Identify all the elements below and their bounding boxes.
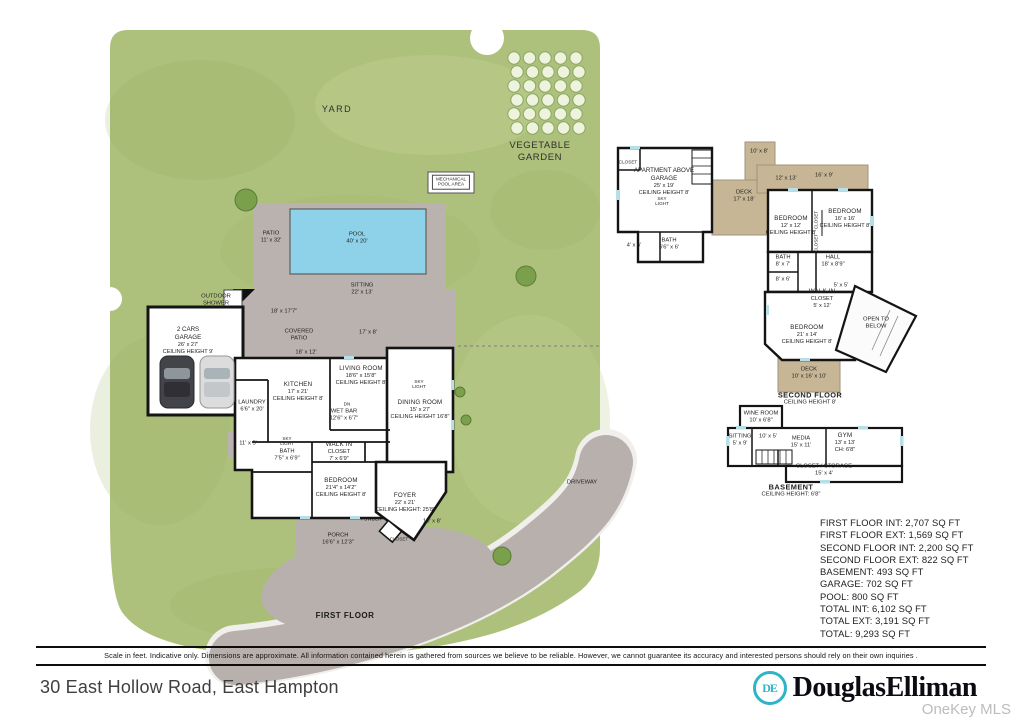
closet-a-label: CLOSET: [813, 211, 818, 229]
sky-light-apartment-label: SKYLIGHT: [655, 196, 669, 206]
bedroom-21-label: BEDROOM21' x 14'CEILING HEIGHT 8': [782, 324, 833, 346]
foyer-label: FOYER22' x 21'CEILING HEIGHT: 25'8": [375, 492, 435, 514]
vegetable-garden-label: VEGETABLEGARDEN: [509, 140, 570, 164]
square-footage-summary: FIRST FLOOR INT: 2,707 SQ FTFIRST FLOOR …: [820, 517, 973, 640]
floorplan-sheet: YARDVEGETABLEGARDENMECHANICALPOOL AREAPA…: [0, 0, 1019, 720]
covered-patio-label: COVEREDPATIO: [285, 329, 314, 344]
pool-label: POOL40' x 20': [346, 232, 367, 247]
yard-label: YARD: [322, 104, 352, 116]
property-address: 30 East Hollow Road, East Hampton: [40, 677, 339, 698]
walk-in-closet-second-label: WALK INCLOSET5' x 12': [809, 288, 836, 310]
sqft-line: TOTAL INT: 6,102 SQ FT: [820, 603, 973, 615]
bedroom-12-label: BEDROOM12' x 12'CEILING HEIGHT 8': [766, 215, 817, 237]
dn-label: DN: [344, 401, 351, 406]
dim-18x177: 18' x 17'7": [271, 308, 298, 315]
dim-5x5: 5' x 5': [834, 282, 849, 289]
dim-11x5: 11' x 5': [239, 440, 257, 447]
dim-16x9: 16' x 9': [815, 172, 833, 179]
bath-first-label: BATH7'5" x 6'9": [274, 449, 299, 464]
patio-label: PATIO11' x 32': [261, 231, 282, 246]
closet-storage-label: CLOSET / STORAGE15' x 4': [796, 464, 852, 479]
deck-upper-label: DECK17' x 18': [733, 190, 754, 205]
dim-4x6: 4' x 6': [627, 242, 642, 249]
sqft-line: FIRST FLOOR INT: 2,707 SQ FT: [820, 517, 973, 529]
sitting-basement-label: SITTING5' x 9': [729, 434, 752, 449]
sqft-line: SECOND FLOOR INT: 2,200 SQ FT: [820, 542, 973, 554]
sqft-line: POOL: 800 SQ FT: [820, 591, 973, 603]
wine-room-label: WINE ROOM10' x 6'8": [744, 411, 779, 426]
dim-12x13: 12' x 13': [775, 175, 796, 182]
closet-foyer-label: CLOSET: [390, 536, 408, 541]
onekey-mls-watermark: OneKey MLS: [922, 701, 1011, 718]
sky-light-dining-label: SKYLIGHT: [412, 379, 426, 389]
bath-second-label: BATH8' x 7': [775, 255, 790, 270]
bedroom-first-label: BEDROOM21'4" x 14'2"CEILING HEIGHT 8': [316, 477, 367, 499]
kitchen-label: KITCHEN17' x 21'CEILING HEIGHT 8': [273, 381, 324, 403]
sitting-label: SITTING22' x 13': [351, 283, 374, 298]
wet-bar-label: WET BAR12'6" x 6'7": [330, 409, 359, 424]
closet-apartment-label: CLOSET: [619, 159, 637, 164]
open-to-below-label: OPEN TOBELOW: [863, 317, 889, 332]
sky-light-bath-label: SKYLIGHT: [280, 436, 294, 446]
dining-room-label: DINING ROOM15' x 27'CEILING HEIGHT 16'8": [391, 399, 450, 421]
dim-18x12: 18' x 12': [295, 349, 316, 356]
sqft-line: FIRST FLOOR EXT: 1,569 SQ FT: [820, 529, 973, 541]
bedroom-16-label: BEDROOM16' x 16'CEILING HEIGHT 8': [820, 208, 871, 230]
dim-10x8-entry: 10' x 8': [423, 518, 441, 525]
bath-apartment-label: BATH6'6" x 6': [659, 238, 679, 253]
dim-10x5: 10' x 5': [759, 433, 777, 440]
douglas-elliman-logo: DE DouglasElliman: [753, 671, 977, 705]
sqft-line: SECOND FLOOR EXT: 822 SQ FT: [820, 554, 973, 566]
basement-title: BASEMENTCEILING HEIGHT: 6'8": [762, 483, 821, 500]
porch-label: PORCH16'6" x 12'3": [322, 533, 354, 548]
sqft-line: TOTAL: 9,293 SQ FT: [820, 628, 973, 640]
laundry-label: LAUNDRY6'6" x 20': [238, 400, 266, 415]
sqft-line: BASEMENT: 493 SQ FT: [820, 566, 973, 578]
brand-monogram-icon: DE: [753, 671, 787, 705]
sqft-line: TOTAL EXT: 3,191 SQ FT: [820, 615, 973, 627]
garage-label: 2 CARSGARAGE26' x 27'CEILING HEIGHT 9': [163, 326, 214, 356]
brand-wordmark: DouglasElliman: [793, 672, 977, 704]
outdoor-shower-label: OUTDOORSHOWER: [201, 294, 231, 309]
hall-label: HALL18' x 8'9": [821, 255, 844, 270]
mechanical-pool-area-label: MECHANICALPOOL AREA: [432, 175, 470, 190]
deck-lower-label: DECK10' x 16' x 10': [792, 367, 827, 382]
powder-label: POWDER: [361, 516, 382, 521]
second-floor-title: SECOND FLOORCEILING HEIGHT 8': [778, 391, 842, 408]
dim-17x8: 17' x 8': [359, 329, 377, 336]
media-label: MEDIA15' x 11': [791, 436, 812, 451]
living-room-label: LIVING ROOM18'6" x 15'8"CEILING HEIGHT 8…: [336, 365, 387, 387]
first-floor-title: FIRST FLOOR: [316, 611, 375, 621]
sqft-line: GARAGE: 702 SQ FT: [820, 578, 973, 590]
gym-label: GYM13' x 13'CH: 6'8": [835, 432, 856, 454]
dim-10x8-deck: 10' x 8': [750, 148, 768, 155]
driveway-label: DRIVEWAY: [567, 479, 597, 486]
disclaimer-text: Scale in feet. Indicative only. Dimensio…: [36, 646, 986, 666]
closet-b-label: CLOSET: [813, 234, 818, 252]
apartment-above-garage-label: APARTMENT ABOVEGARAGE25' x 19'CEILING HE…: [634, 167, 694, 197]
walk-in-closet-first-label: WALK INCLOSET7' x 6'9": [326, 441, 353, 463]
dim-8x6: 8' x 6': [776, 276, 791, 283]
